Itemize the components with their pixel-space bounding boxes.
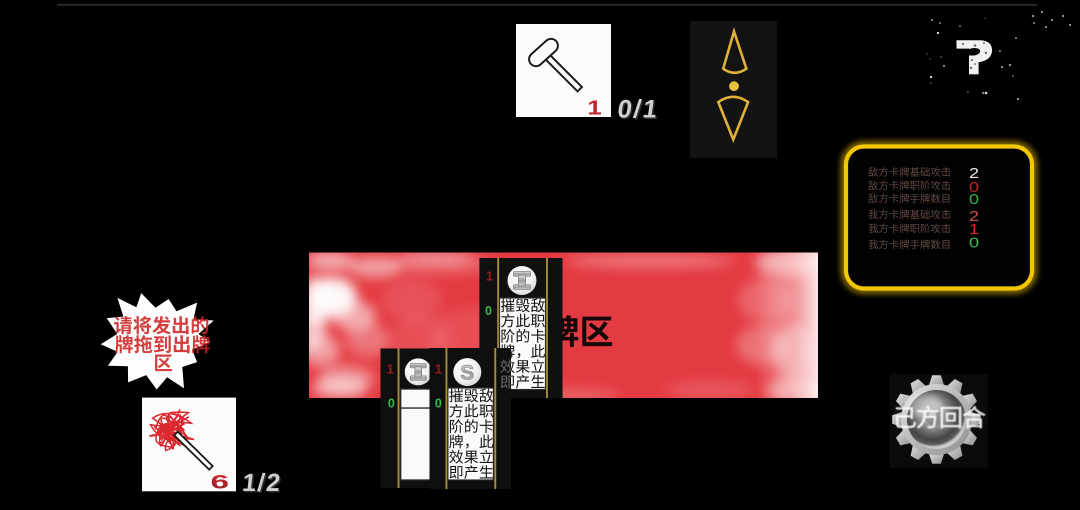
svg-text:0: 0 xyxy=(485,304,492,318)
svg-text:0: 0 xyxy=(969,235,979,251)
svg-text:0: 0 xyxy=(435,396,442,410)
svg-text:1: 1 xyxy=(435,362,442,377)
svg-text:1/2: 1/2 xyxy=(241,469,283,497)
svg-text:1: 1 xyxy=(587,96,602,118)
svg-text:0/1: 0/1 xyxy=(616,96,661,124)
svg-text:6: 6 xyxy=(210,471,228,493)
svg-text:0: 0 xyxy=(388,396,395,410)
svg-text:1: 1 xyxy=(486,268,493,283)
svg-text:S: S xyxy=(460,362,474,385)
svg-text:0: 0 xyxy=(969,191,979,207)
svg-text:1: 1 xyxy=(387,362,394,377)
